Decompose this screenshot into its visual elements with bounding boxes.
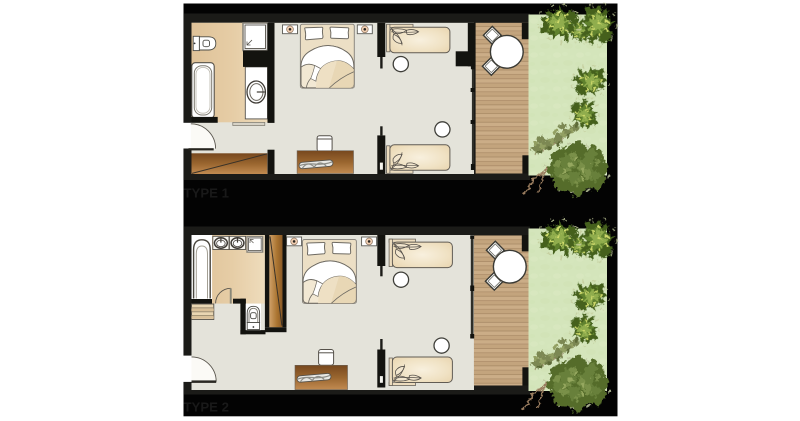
svg-text:TYPE 1: TYPE 1 <box>184 186 229 201</box>
svg-text:TYPE 2: TYPE 2 <box>184 400 229 415</box>
